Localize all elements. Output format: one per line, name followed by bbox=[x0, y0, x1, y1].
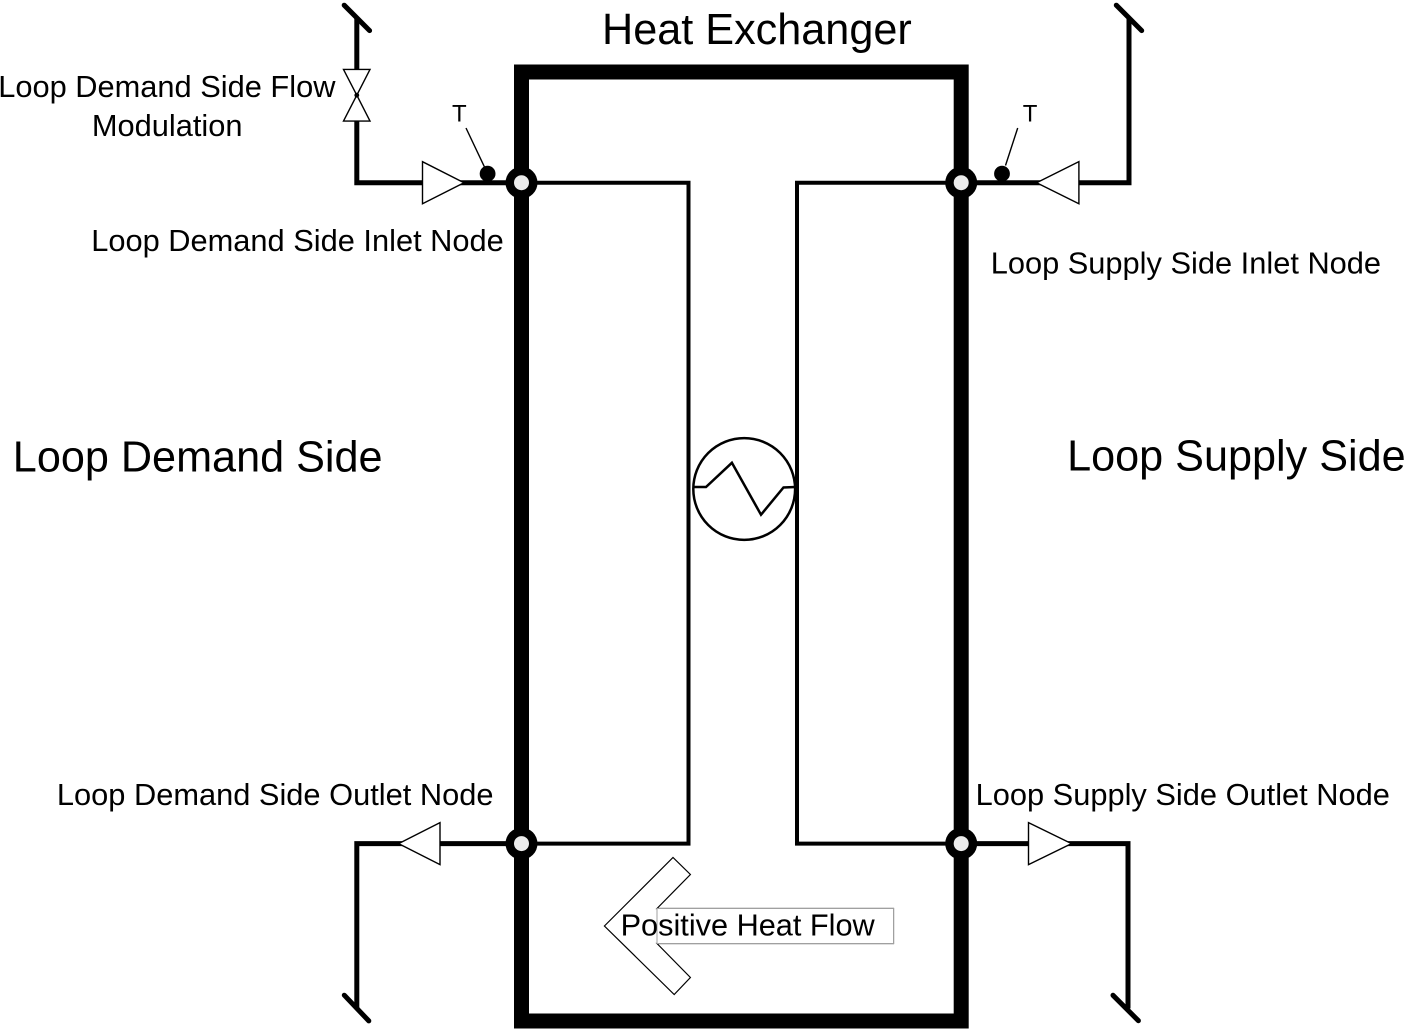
svg-text:Modulation: Modulation bbox=[92, 108, 243, 143]
svg-text:Loop Demand Side: Loop Demand Side bbox=[13, 434, 383, 482]
svg-text:Loop Demand Side Flow: Loop Demand Side Flow bbox=[0, 69, 336, 104]
svg-text:T: T bbox=[452, 100, 467, 127]
svg-text:T: T bbox=[1023, 100, 1038, 127]
svg-text:Heat Exchanger: Heat Exchanger bbox=[602, 6, 912, 54]
svg-text:Loop Supply Side: Loop Supply Side bbox=[1067, 433, 1405, 481]
svg-text:Loop Demand Side Outlet Node: Loop Demand Side Outlet Node bbox=[57, 777, 494, 812]
svg-text:Positive Heat Flow: Positive Heat Flow bbox=[621, 907, 876, 942]
svg-text:Loop Supply Side Inlet Node: Loop Supply Side Inlet Node bbox=[991, 246, 1381, 281]
svg-text:Loop Demand Side Inlet Node: Loop Demand Side Inlet Node bbox=[91, 223, 504, 258]
svg-text:Loop Supply Side Outlet Node: Loop Supply Side Outlet Node bbox=[976, 777, 1390, 812]
